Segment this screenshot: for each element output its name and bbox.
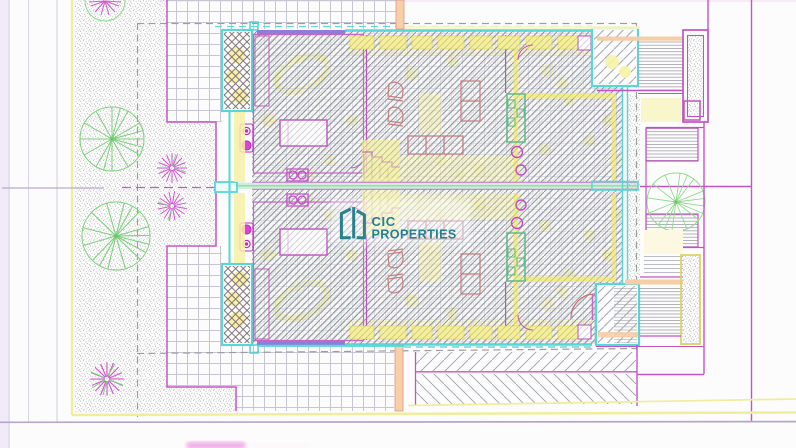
svg-text:PROPERTIES: PROPERTIES: [372, 228, 457, 242]
